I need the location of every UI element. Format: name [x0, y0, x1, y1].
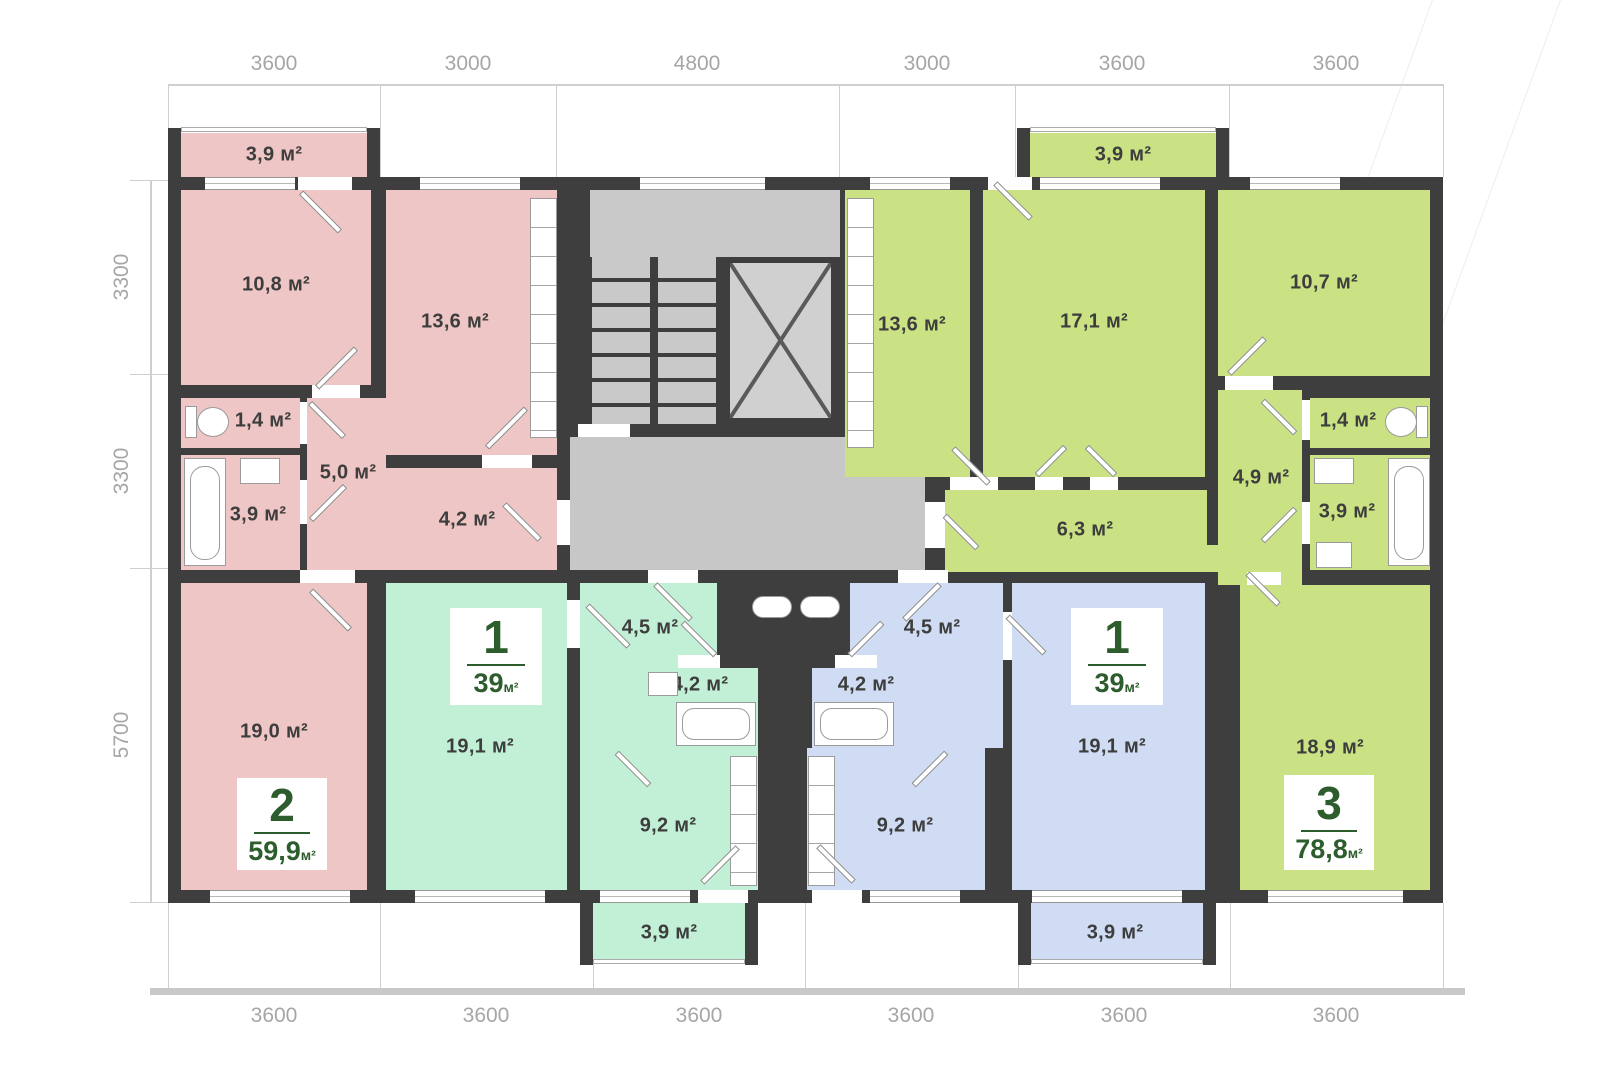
apt3-entrance	[925, 502, 945, 548]
dim-bottom-5: 3600	[1101, 1004, 1148, 1028]
balcony-door-opening	[698, 890, 748, 903]
dim-line-left	[150, 180, 152, 903]
stairs-icon	[592, 257, 650, 424]
door-opening	[835, 655, 877, 668]
dim-top-4: 3000	[904, 52, 951, 76]
badge-rule	[467, 664, 524, 666]
balcony-door-opening	[812, 890, 862, 903]
balcony-wall	[1203, 903, 1216, 965]
dim-left-3: 5700	[110, 712, 134, 759]
balcony-door-opening	[298, 177, 352, 190]
door-opening	[1035, 477, 1063, 490]
badge-rule	[254, 832, 310, 834]
floor-plan: 3600 3000 4800 3000 3600 3600 3300 3300 …	[0, 0, 1620, 1080]
apt1-blue-area: 39	[1094, 668, 1124, 698]
apt3-corridor[interactable]	[1207, 545, 1218, 572]
apt1-blue-kitchen-label: 9,2 м²	[877, 815, 934, 838]
door-opening	[1225, 376, 1273, 390]
balcony-rail	[1030, 127, 1216, 132]
apt2-area-unit: м²	[301, 847, 316, 863]
badge-rule	[1301, 830, 1357, 832]
balcony-wall	[1018, 903, 1031, 965]
apt3-number: 3	[1316, 780, 1342, 826]
dim-tick	[1443, 903, 1444, 988]
apt1-mint-bathroom-label: 4,2 м²	[672, 674, 729, 697]
bathtub-icon	[820, 708, 888, 740]
kitchen-cabinets	[530, 198, 557, 438]
apt2-entrance	[557, 500, 570, 545]
door-opening	[1090, 477, 1118, 490]
toilet-icon	[1416, 406, 1428, 438]
balcony-wall	[745, 903, 758, 965]
window	[870, 177, 950, 190]
apt1-mint-hall-label: 4,5 м²	[622, 617, 679, 640]
apt1-blue-hall-ext[interactable]	[925, 668, 1003, 748]
stair-landing	[590, 190, 840, 257]
dim-tick	[380, 903, 381, 988]
apt1-mint-hall-ext[interactable]	[580, 668, 645, 748]
dim-tick	[130, 568, 168, 569]
window	[1250, 177, 1340, 190]
window	[1040, 177, 1160, 190]
apt1-blue-badge[interactable]: 1 39м²	[1071, 608, 1163, 705]
badge-rule	[1088, 664, 1145, 666]
dim-tick	[130, 180, 168, 181]
door-opening	[482, 455, 532, 468]
dim-top-5: 3600	[1099, 52, 1146, 76]
dim-bottom-6: 3600	[1313, 1004, 1360, 1028]
bathtub-icon	[190, 466, 220, 560]
dim-line-top	[168, 84, 1443, 86]
apt2-area: 59,9	[248, 836, 301, 866]
toilet-icon	[1385, 407, 1417, 437]
apt1-mint-area-unit: м²	[504, 679, 519, 695]
apt2-living-label: 19,0 м²	[240, 721, 308, 744]
window	[1032, 890, 1182, 903]
apt3-bedroom-label: 10,7 м²	[1290, 272, 1358, 295]
apt2-wc-label: 1,4 м²	[235, 410, 292, 433]
counter-icon	[800, 596, 840, 618]
apt1-mint-badge[interactable]: 1 39м²	[450, 608, 542, 705]
apt1-blue-area-unit: м²	[1125, 679, 1140, 695]
window	[870, 890, 960, 903]
balcony-wall	[580, 903, 593, 965]
apt3-bedroom2-label: 18,9 м²	[1296, 737, 1364, 760]
balcony-rail	[1031, 959, 1203, 964]
door-opening	[1302, 400, 1310, 440]
apt1-mint-entrance	[648, 570, 698, 583]
dim-tick	[130, 902, 168, 903]
dim-top-3: 4800	[674, 52, 721, 76]
apt3-area-unit: м²	[1348, 845, 1363, 861]
apt1-blue-living-label: 19,1 м²	[1078, 736, 1146, 759]
apt1-blue-entrance	[898, 570, 948, 583]
apt3-kitchen-label: 13,6 м²	[878, 314, 946, 337]
apt3-badge[interactable]: 3 78,8м²	[1284, 775, 1374, 870]
balcony-rail	[181, 127, 367, 132]
dim-tick	[1229, 84, 1230, 177]
apt2-kitchen-label: 13,6 м²	[421, 311, 489, 334]
door-opening	[300, 402, 307, 444]
apt2-bedroom-label: 10,8 м²	[242, 274, 310, 297]
apt3-corridor-label: 6,3 м²	[1057, 519, 1114, 542]
dim-bottom-1: 3600	[251, 1004, 298, 1028]
balcony-wall	[1017, 128, 1030, 177]
window	[640, 177, 765, 190]
bathtub-icon	[682, 708, 750, 740]
apt1-blue-hall-label: 4,5 м²	[904, 617, 961, 640]
door-opening	[300, 480, 307, 524]
window	[420, 177, 520, 190]
elevator-icon	[724, 257, 837, 424]
kitchen-cabinets	[808, 756, 835, 886]
dim-tick	[839, 84, 840, 177]
sink-icon	[240, 458, 280, 484]
dim-tick	[1230, 903, 1231, 988]
apt1-blue-balcony-label: 3,9 м²	[1087, 922, 1144, 945]
apt1-blue-number: 1	[1104, 614, 1130, 660]
toilet-icon	[197, 407, 229, 437]
balcony-rail	[593, 959, 745, 964]
sink-icon	[648, 672, 678, 696]
window	[600, 890, 690, 903]
dim-tick	[805, 903, 806, 988]
dim-bottom-3: 3600	[676, 1004, 723, 1028]
apt2-badge[interactable]: 2 59,9м²	[237, 778, 327, 870]
apt3-bathroom-label: 3,9 м²	[1319, 501, 1376, 524]
toilet-icon	[185, 406, 197, 438]
apt1-mint-balcony-label: 3,9 м²	[641, 922, 698, 945]
apt1-mint-kitchen-label: 9,2 м²	[640, 815, 697, 838]
dim-tick	[1015, 84, 1016, 177]
dim-bottom-2: 3600	[463, 1004, 510, 1028]
window	[210, 890, 350, 903]
dim-left-1: 3300	[110, 254, 134, 301]
window	[1268, 890, 1403, 903]
apt1-mint-area: 39	[473, 668, 503, 698]
sink-icon	[1314, 458, 1354, 484]
counter-icon	[752, 596, 792, 618]
dim-bottom-4: 3600	[888, 1004, 935, 1028]
apt3-balcony-label: 3,9 м²	[1095, 144, 1152, 167]
door-opening	[300, 570, 355, 583]
balcony-wall	[168, 128, 181, 177]
dim-tick	[1443, 84, 1444, 177]
dim-left-2: 3300	[110, 448, 134, 495]
kitchen-cabinets	[847, 198, 874, 448]
dim-top-1: 3600	[251, 52, 298, 76]
apt3-living[interactable]	[983, 190, 1205, 477]
dim-line-bottom	[150, 988, 1465, 995]
dim-tick	[130, 374, 168, 375]
door-opening	[950, 477, 998, 490]
stair-door-opening	[578, 424, 630, 437]
dim-tick	[168, 903, 169, 988]
kitchen-cabinets	[730, 756, 757, 886]
door-opening	[1302, 502, 1310, 544]
apt3-wc-label: 1,4 м²	[1320, 410, 1377, 433]
apt2-corridor-label: 4,2 м²	[439, 509, 496, 532]
stairs-icon	[658, 257, 716, 424]
washer-icon	[1316, 542, 1352, 568]
dim-top-2: 3000	[445, 52, 492, 76]
dim-tick	[556, 84, 557, 177]
apt1-mint-living-label: 19,1 м²	[446, 736, 514, 759]
window	[205, 177, 295, 190]
door-opening	[678, 655, 720, 668]
apt3-area: 78,8	[1295, 834, 1348, 864]
apt1-blue-bathroom-label: 4,2 м²	[838, 674, 895, 697]
dim-tick	[380, 84, 381, 177]
apt1-mint-number: 1	[483, 614, 509, 660]
dim-top-6: 3600	[1313, 52, 1360, 76]
apt2-hall-label: 5,0 м²	[320, 462, 377, 485]
apt3-hall-label: 4,9 м²	[1233, 467, 1290, 490]
bathtub-icon	[1394, 466, 1424, 560]
apt2-balcony-label: 3,9 м²	[246, 144, 303, 167]
apt2-bathroom-label: 3,9 м²	[230, 504, 287, 527]
door-opening	[567, 600, 580, 648]
apt3-living-label: 17,1 м²	[1060, 311, 1128, 334]
balcony-wall	[1216, 128, 1229, 177]
balcony-wall	[367, 128, 380, 177]
apt2-number: 2	[269, 782, 295, 828]
window	[415, 890, 545, 903]
